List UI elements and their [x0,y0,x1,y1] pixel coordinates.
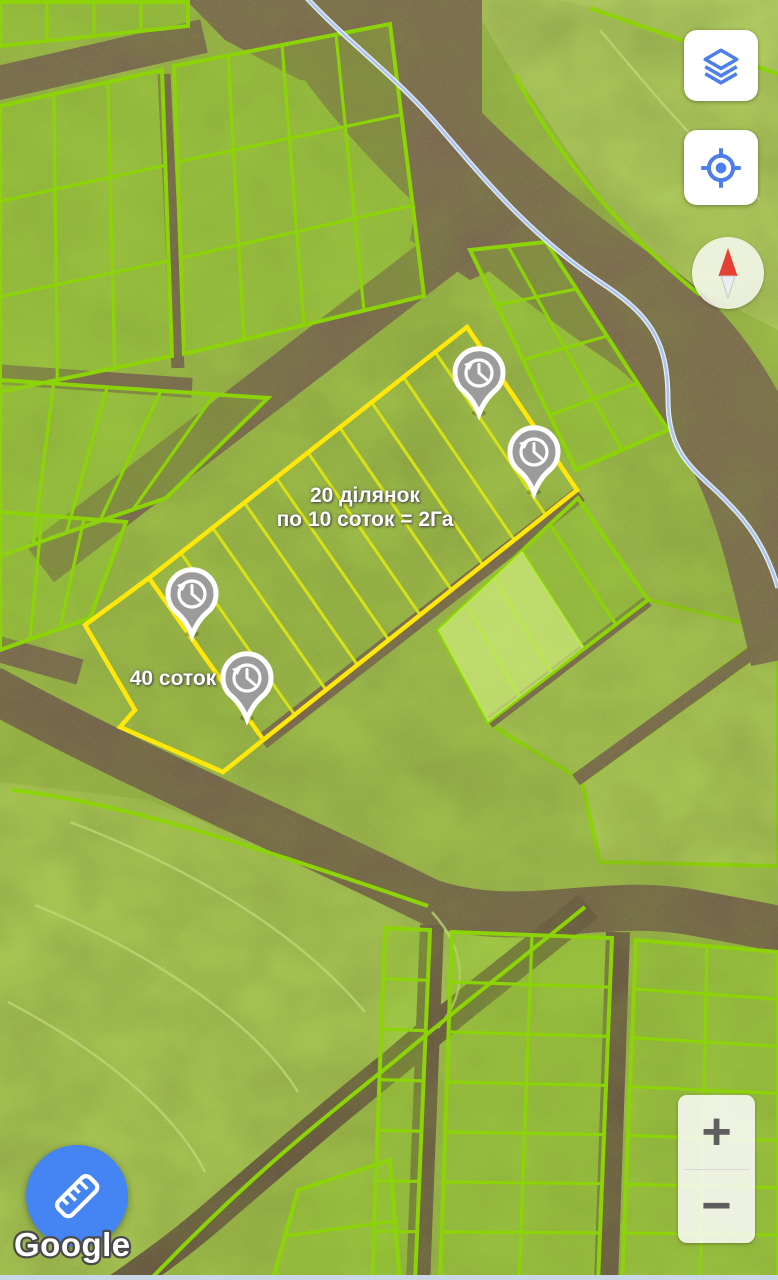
my-location-icon [699,146,743,190]
my-location-button[interactable] [684,130,758,205]
zoom-control: + − [678,1095,755,1243]
compass-button[interactable] [692,237,764,309]
compass-needle-icon [692,237,764,309]
zoom-out-button[interactable]: − [678,1170,755,1244]
measure-distance-button[interactable] [26,1145,128,1247]
parcel-block [0,70,172,392]
layers-icon [700,45,742,87]
ruler-icon [49,1168,105,1224]
navigation-bar-strip [0,1275,778,1280]
satellite-map[interactable] [0,0,778,1280]
google-maps-screen: 20 ділянок по 10 соток = 2Га 40 соток + … [0,0,778,1280]
zoom-in-button[interactable]: + [678,1095,755,1169]
layers-button[interactable] [684,30,758,101]
